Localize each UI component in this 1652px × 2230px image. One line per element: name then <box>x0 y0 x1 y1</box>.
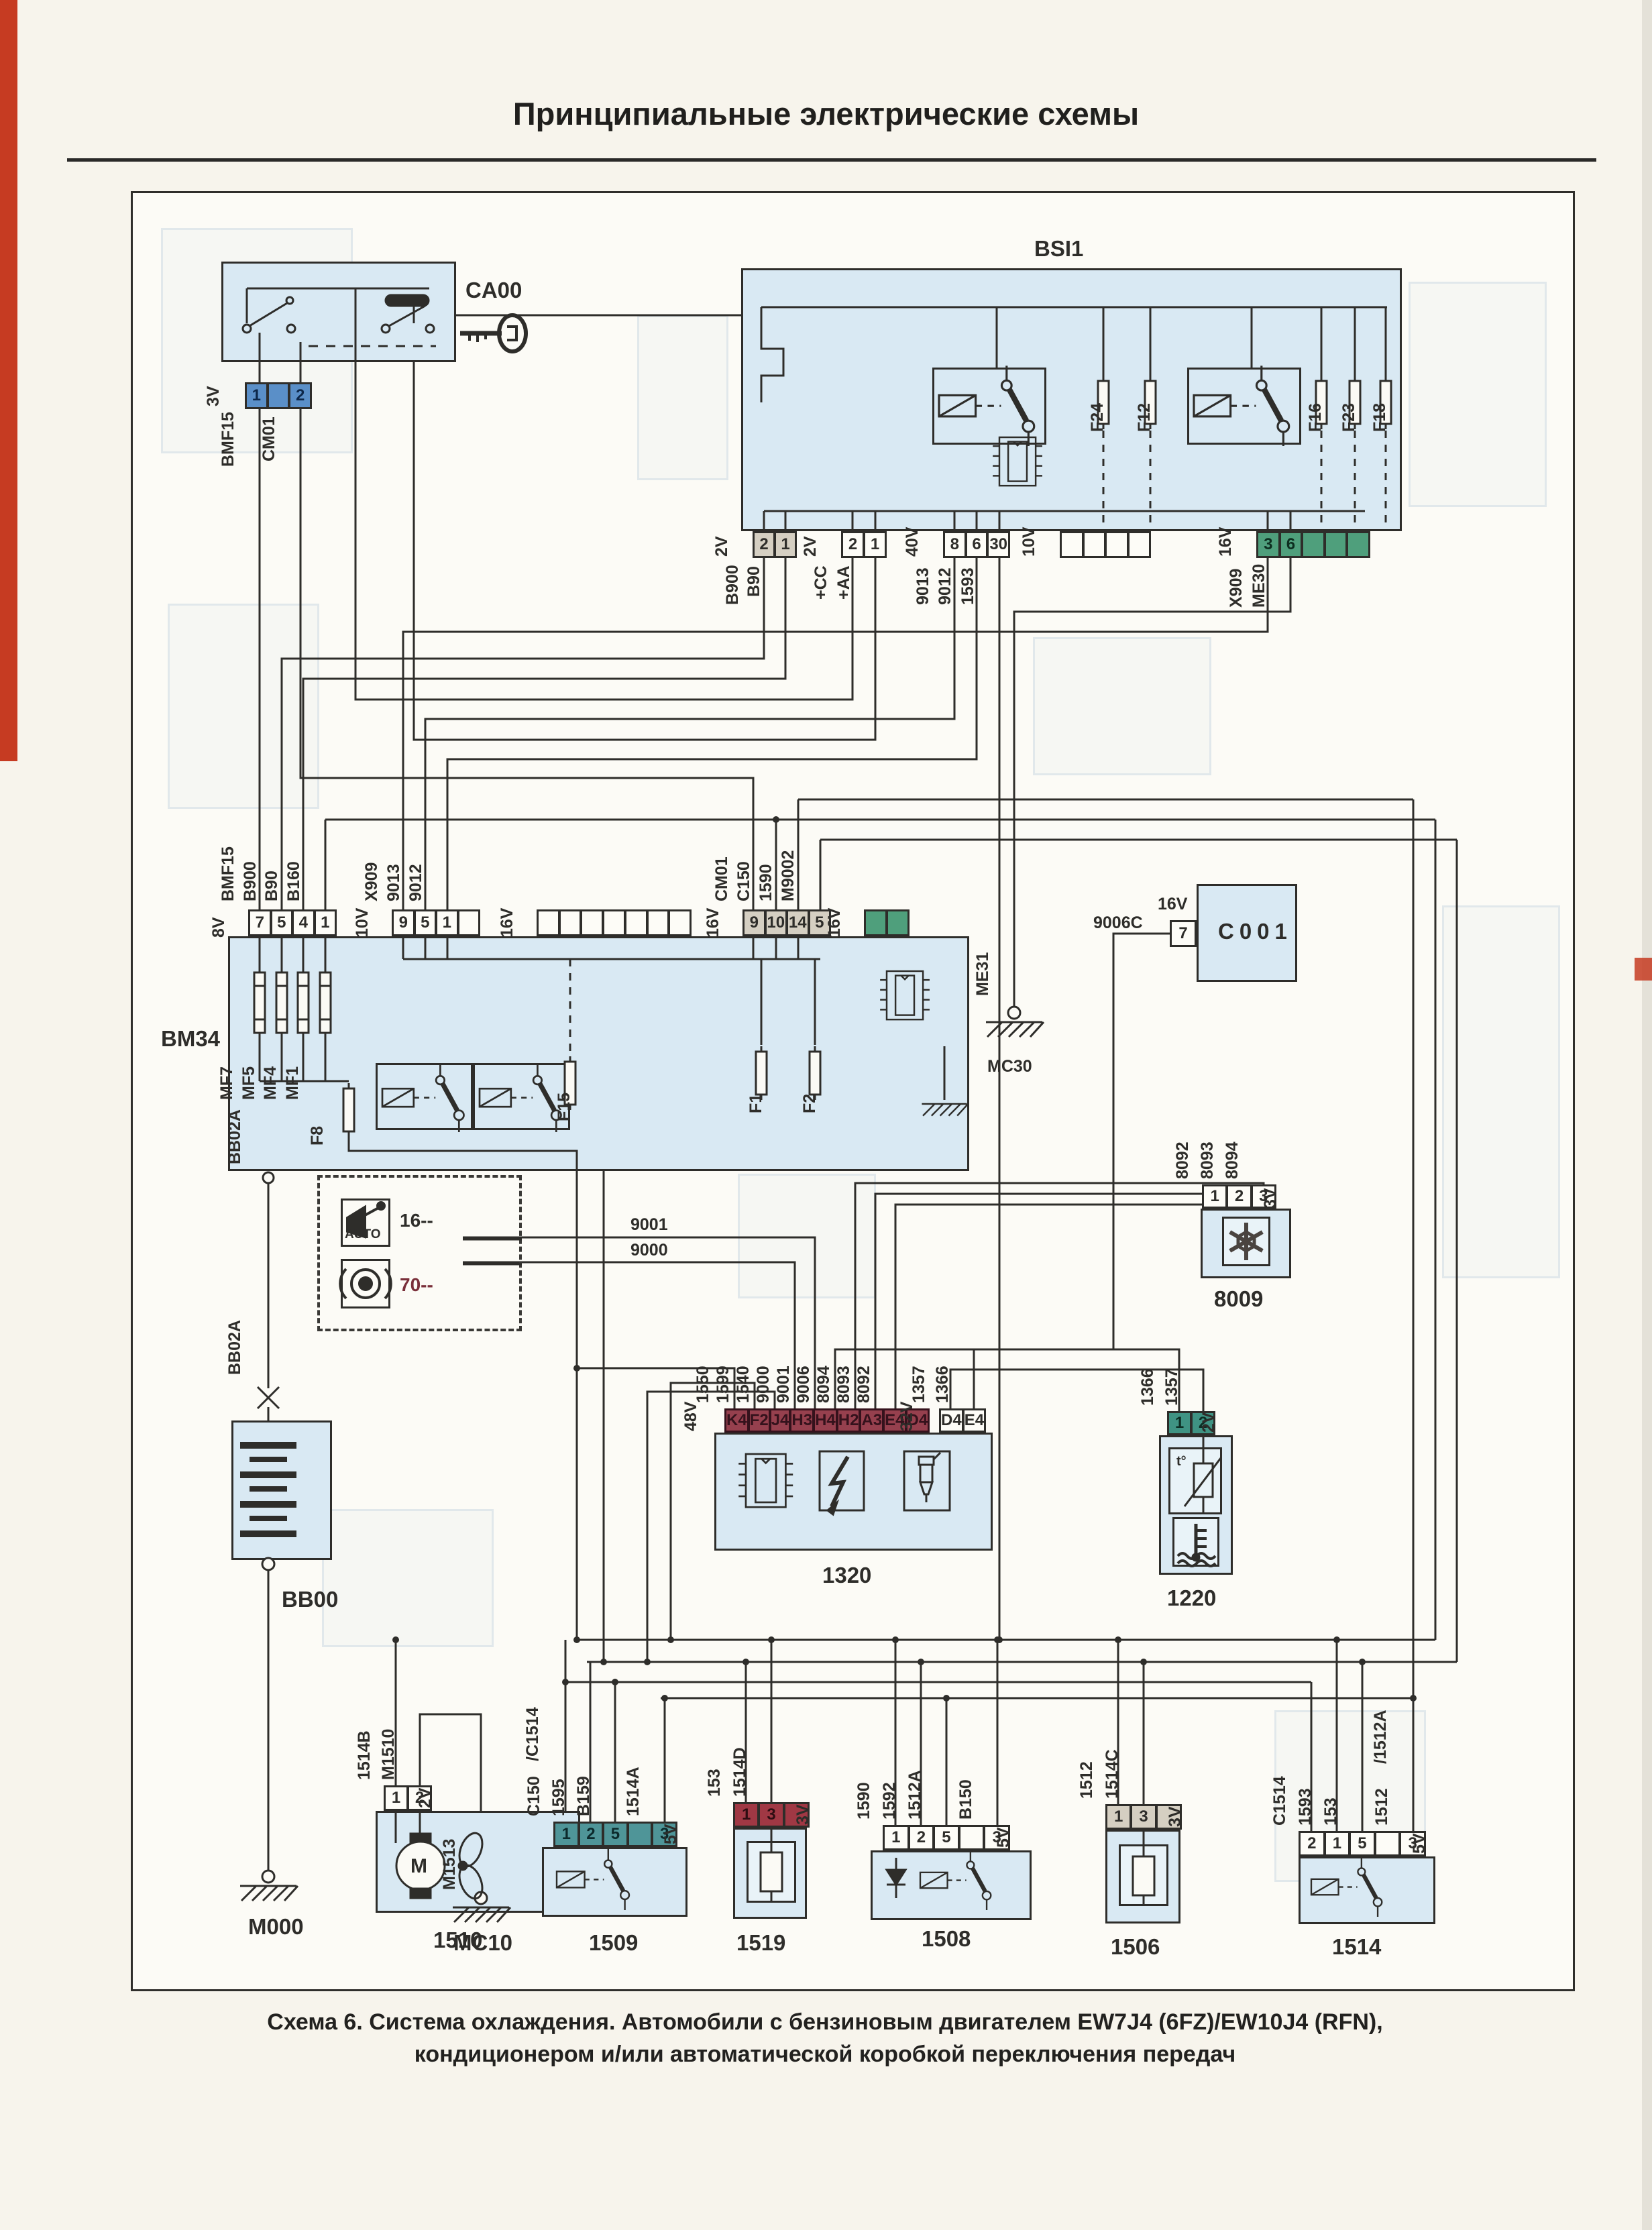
pin-30: 30 <box>987 531 1010 558</box>
wire-label: 1366 <box>1138 1368 1158 1406</box>
bsi1-relay2-box <box>1187 368 1301 445</box>
pin-3: 3 <box>1256 531 1280 558</box>
voltage-label: 8V <box>209 917 229 938</box>
pin-1: 1 <box>315 909 337 936</box>
resistor-loop-1506 <box>1119 1844 1168 1906</box>
pin-5: 5 <box>603 1822 628 1847</box>
fuse-label: F1 <box>747 1094 767 1113</box>
wire-label: B90 <box>745 566 765 597</box>
block-label-1320: 1320 <box>822 1563 871 1588</box>
ground-label: MC10 <box>453 1930 512 1956</box>
fuse-label: MF7 <box>217 1066 237 1100</box>
caption-line1: Схема 6. Система охлаждения. Автомобили … <box>101 2009 1549 2036</box>
wire-label: M1513 <box>440 1839 460 1890</box>
wire-label: 8093 <box>1198 1141 1218 1179</box>
pin-empty <box>887 909 910 936</box>
wire-label: X909 <box>362 862 382 901</box>
connector-bsi1-2v: 21 <box>841 531 887 558</box>
wire-branch-label: /1512A <box>1371 1710 1391 1764</box>
wire-label: 1550 <box>694 1365 714 1403</box>
wire-label: B150 <box>956 1779 977 1820</box>
connector-1320-48v: K4F2J4H3H4H2A3E4D4 <box>724 1408 905 1433</box>
page-edge-red-mark <box>1635 958 1652 981</box>
connector-bsi1-40v: 8630 <box>943 531 1010 558</box>
wire-label: M1510 <box>379 1729 399 1780</box>
wire-label: 1514A <box>624 1767 644 1816</box>
pin-1: 1 <box>1202 1184 1227 1209</box>
connector-1508: 1253 <box>883 1825 1010 1850</box>
ground-wire-label: ME31 <box>973 952 993 996</box>
pin-F2: F2 <box>749 1408 770 1433</box>
pin-1: 1 <box>553 1822 579 1847</box>
wire-label: 8094 <box>814 1365 834 1403</box>
fuse-label: F18 <box>1370 403 1390 432</box>
wire-label: 8092 <box>855 1365 875 1403</box>
pin-empty <box>959 1825 985 1850</box>
wire-label: B159 <box>574 1776 594 1816</box>
wire-label: C1514 <box>1270 1776 1290 1826</box>
connector-bsi1-16v-green: 36 <box>1256 531 1370 558</box>
wire-label: 9012 <box>936 567 956 605</box>
pin-empty <box>647 909 669 936</box>
voltage-label: 3V <box>1261 1188 1281 1209</box>
voltage-label: 40V <box>903 527 923 557</box>
engine-ecu-block <box>714 1433 993 1551</box>
block-label-ca00: CA00 <box>465 278 522 303</box>
wire-label: BMF15 <box>219 412 239 467</box>
pin-empty <box>603 909 625 936</box>
wire-label: 9006 <box>794 1365 814 1403</box>
fuse-label: F2 <box>800 1094 820 1113</box>
block-label-1220: 1220 <box>1167 1585 1216 1611</box>
wire-label: CM01 <box>712 856 732 901</box>
wire-label: 1590 <box>757 864 777 901</box>
fuse-label: F24 <box>1088 403 1108 432</box>
pin-1: 1 <box>1325 1831 1350 1856</box>
wire-label: 1512 <box>1372 1788 1392 1826</box>
connector-bm34-16v-green <box>864 909 910 936</box>
voltage-label: 3V <box>793 1804 814 1825</box>
pin-2: 2 <box>579 1822 604 1847</box>
title-rule <box>67 158 1596 162</box>
pin-2: 2 <box>753 531 775 558</box>
wire-label: 9001 <box>774 1365 794 1403</box>
pin-6: 6 <box>1280 531 1303 558</box>
wire-label: 8093 <box>834 1365 855 1403</box>
connector-bm34-16v-gray: 910145 <box>742 909 831 936</box>
pin-E4: E4 <box>963 1408 986 1433</box>
voltage-label: 2V <box>1199 1412 1219 1433</box>
voltage-label: 32V <box>897 1402 918 1431</box>
option-code-label: 70-- <box>400 1274 433 1296</box>
connector-bm34-16v <box>537 909 692 936</box>
connector-bm34-10v: 951 <box>392 909 480 936</box>
block-label-bsi1: BSI1 <box>1034 236 1083 262</box>
voltage-label: 5V <box>1410 1833 1430 1854</box>
wire-label: 1514C <box>1103 1749 1123 1799</box>
wire-label: 1593 <box>1296 1788 1316 1826</box>
wire-label: CM01 <box>260 416 280 461</box>
wire-label: 9013 <box>384 864 404 901</box>
temp-symbol: t° <box>1176 1454 1187 1469</box>
wire-label: BB02A <box>225 1109 245 1164</box>
wire-label: 1514D <box>730 1747 751 1797</box>
block-label-1506: 1506 <box>1111 1934 1160 1960</box>
connector-bsi1-10v <box>1060 531 1151 558</box>
pin-1: 1 <box>775 531 797 558</box>
wire-label: X909 <box>1227 569 1247 608</box>
wire-label: 1512A <box>905 1770 926 1820</box>
pin-3: 3 <box>759 1802 783 1828</box>
ground-label: MC30 <box>987 1057 1032 1076</box>
pin-2: 2 <box>1227 1184 1251 1209</box>
block-label-bm34: BM34 <box>161 1026 220 1052</box>
wire-label: 1514B <box>355 1730 375 1780</box>
battery-block <box>231 1420 332 1560</box>
fuse-label: F8 <box>308 1126 328 1146</box>
pin-D4: D4 <box>939 1408 963 1433</box>
pin-empty <box>581 909 603 936</box>
pin-empty <box>1060 531 1083 558</box>
wire-label: C150 <box>734 861 755 901</box>
auto-gearbox-text: AUTO <box>345 1227 380 1242</box>
pin-empty <box>628 1822 653 1847</box>
pin-H4: H4 <box>814 1408 837 1433</box>
pin-empty <box>559 909 582 936</box>
bm34-block <box>228 936 969 1171</box>
wire-label: 1540 <box>734 1365 754 1403</box>
fuse-label: F12 <box>1135 403 1155 432</box>
pin-10: 10 <box>765 909 787 936</box>
pin-4: 4 <box>292 909 315 936</box>
bsi1-relay1-box <box>932 368 1046 445</box>
block-label-1509: 1509 <box>589 1930 638 1956</box>
option-code-label: 16-- <box>400 1210 433 1231</box>
pin-empty <box>1375 1831 1400 1856</box>
voltage-label: 16V <box>704 908 724 938</box>
pin-empty <box>669 909 692 936</box>
connector-1509: 1253 <box>553 1822 677 1847</box>
wire-branch-label: /C1514 <box>523 1707 543 1761</box>
wire-label: 8094 <box>1223 1141 1243 1179</box>
connector-c001: 7 <box>1170 920 1197 947</box>
caption-line2: кондиционером и/или автоматической короб… <box>101 2042 1549 2068</box>
voltage-label: 16V <box>498 908 518 938</box>
pin-2: 2 <box>1299 1831 1325 1856</box>
pin-A3: A3 <box>860 1408 883 1433</box>
pin-empty <box>1105 531 1128 558</box>
wire-label: C150 <box>525 1776 545 1816</box>
pin-2: 2 <box>289 382 312 409</box>
wire-label: 1357 <box>910 1365 930 1403</box>
voltage-label: 2V <box>416 1787 436 1808</box>
pin-empty <box>1347 531 1370 558</box>
wire-label: +AA <box>834 565 855 600</box>
pin-empty <box>537 909 559 936</box>
pin-6: 6 <box>966 531 988 558</box>
pin-2: 2 <box>841 531 864 558</box>
wire-label: 1357 <box>1162 1368 1182 1406</box>
wire-label: 153 <box>1321 1797 1341 1826</box>
pin-1: 1 <box>1105 1804 1131 1830</box>
fuse-label: MF5 <box>239 1066 260 1100</box>
pin-7: 7 <box>1170 920 1197 947</box>
pin-empty <box>1128 531 1152 558</box>
pin-empty <box>1083 531 1106 558</box>
connector-bsi1-2v-gray: 21 <box>753 531 797 558</box>
wire-label: +CC <box>812 565 832 600</box>
wire-label: B900 <box>241 861 261 901</box>
bm34-relay1-box <box>376 1063 473 1130</box>
wire-label: B90 <box>262 871 282 901</box>
pin-1: 1 <box>436 909 458 936</box>
pin-3: 3 <box>1131 1804 1156 1830</box>
voltage-label: 10V <box>1020 527 1040 557</box>
wire-label: B160 <box>284 861 305 901</box>
pin-empty <box>1302 531 1325 558</box>
snowflake-icon-box <box>1222 1217 1270 1266</box>
battery-label: BB00 <box>282 1587 338 1612</box>
pin-J4: J4 <box>770 1408 791 1433</box>
pin-empty <box>1325 531 1347 558</box>
pin-7: 7 <box>248 909 271 936</box>
page-title: Принципиальные электрические схемы <box>0 95 1652 132</box>
voltage-label: 2V <box>712 536 732 557</box>
pin-5: 5 <box>271 909 293 936</box>
motor-letter: M <box>410 1855 427 1878</box>
pin-H2: H2 <box>837 1408 861 1433</box>
pin-14: 14 <box>787 909 809 936</box>
connector-1514: 2153 <box>1299 1831 1426 1856</box>
fuse-label: MF1 <box>283 1066 303 1100</box>
fuse-label: F23 <box>1339 403 1360 432</box>
coolant-icon-box <box>1172 1517 1219 1567</box>
pin-8: 8 <box>943 531 966 558</box>
voltage-label: 3V <box>1166 1806 1186 1827</box>
voltage-label: 2V <box>801 536 821 557</box>
ground-label: M000 <box>248 1914 304 1940</box>
wire-label: 9000 <box>630 1241 668 1260</box>
fuse-label: MF4 <box>261 1066 281 1100</box>
wire-label: 1599 <box>714 1365 734 1403</box>
wire-label: 1590 <box>855 1782 875 1820</box>
pin-1: 1 <box>245 382 268 409</box>
wire-label: 9012 <box>406 864 427 901</box>
block-label-1508: 1508 <box>922 1926 971 1952</box>
block-label-c001: C001 <box>1218 919 1292 944</box>
wire-label: B900 <box>723 565 743 605</box>
voltage-label: 16V <box>825 908 845 938</box>
pin-5: 5 <box>934 1825 959 1850</box>
bsi1-block <box>741 268 1402 531</box>
voltage-label: 16V <box>1216 527 1236 557</box>
block-label-8009: 8009 <box>1214 1286 1263 1312</box>
pin-9: 9 <box>742 909 765 936</box>
pin-empty <box>268 382 290 409</box>
wire-label: 1366 <box>933 1365 953 1403</box>
wire-label: 1593 <box>958 567 979 605</box>
pin-1: 1 <box>733 1802 759 1828</box>
pin-5: 5 <box>415 909 437 936</box>
pin-1: 1 <box>1167 1411 1191 1435</box>
wire-label: 1592 <box>880 1782 900 1820</box>
pin-empty <box>625 909 647 936</box>
wire-label: 1512 <box>1077 1761 1097 1799</box>
wire-label: 1595 <box>549 1779 569 1816</box>
block-label-1514: 1514 <box>1332 1934 1381 1960</box>
pin-empty <box>458 909 481 936</box>
fan-relay-block-1514 <box>1299 1856 1435 1924</box>
wire-label: BMF15 <box>219 846 239 901</box>
fan-relay-block-1508 <box>871 1850 1032 1920</box>
wire-label: BB02A <box>225 1320 245 1375</box>
pin-1: 1 <box>864 531 887 558</box>
selector-ring-icon <box>341 1259 390 1308</box>
connector-1320-32v: D4E4 <box>939 1408 986 1433</box>
wire-label: ME30 <box>1250 564 1270 608</box>
connector-ca00: 12 <box>245 382 312 409</box>
wire-label: 9000 <box>754 1365 774 1403</box>
pin-K4: K4 <box>724 1408 749 1433</box>
fuse-label: F16 <box>1306 403 1326 432</box>
voltage-label: 48V <box>681 1402 702 1431</box>
voltage-label: 16V <box>1158 895 1187 914</box>
fuse-label: F15 <box>555 1093 575 1121</box>
schematic-page: Принципиальные электрические схемы <box>0 0 1652 2230</box>
ignition-switch-block <box>221 262 456 362</box>
resistor-loop-1519 <box>747 1841 796 1903</box>
wire-label: 153 <box>705 1769 725 1797</box>
wire-label: 9006C <box>1093 913 1143 933</box>
block-label-1519: 1519 <box>736 1930 785 1956</box>
pin-1: 1 <box>883 1825 909 1850</box>
pin-H3: H3 <box>790 1408 814 1433</box>
voltage-label: 3V <box>204 386 224 406</box>
wire-label: 9013 <box>914 567 934 605</box>
voltage-label: 5V <box>661 1824 681 1844</box>
wire-label: 8092 <box>1173 1141 1193 1179</box>
wire-label: 9001 <box>630 1215 668 1235</box>
pin-9: 9 <box>392 909 415 936</box>
connector-bm34-8v: 7541 <box>248 909 337 936</box>
pin-1: 1 <box>384 1785 408 1811</box>
voltage-label: 10V <box>353 908 373 938</box>
voltage-label: 5V <box>994 1827 1014 1848</box>
pin-2: 2 <box>909 1825 934 1850</box>
pin-5: 5 <box>1350 1831 1375 1856</box>
fan-relay-block-1509 <box>542 1847 687 1917</box>
wire-label: M9002 <box>779 850 799 901</box>
pin-empty <box>864 909 887 936</box>
